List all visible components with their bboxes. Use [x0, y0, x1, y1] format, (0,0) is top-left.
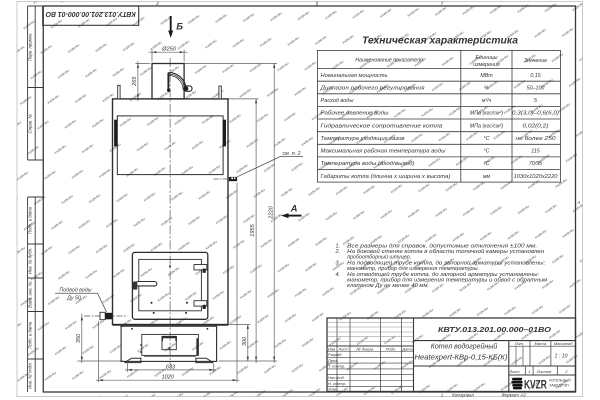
svg-text:Н. контр.: Н. контр. [328, 381, 346, 386]
svg-text:Ø250: Ø250 [161, 46, 177, 52]
svg-text:Масса: Масса [534, 341, 547, 346]
svg-text:KVZR: KVZR [524, 377, 547, 391]
svg-text:КОТЕЛЬНЫЙ: КОТЕЛЬНЫЙ [549, 379, 571, 383]
svg-text:Расход воды: Расход воды [321, 98, 354, 104]
svg-text:2.: 2. [335, 249, 341, 255]
svg-text:Утв.: Утв. [328, 386, 337, 391]
svg-text:Рабочее давление воды: Рабочее давление воды [321, 111, 389, 117]
svg-text:Подп. и дата: Подп. и дата [27, 321, 32, 349]
svg-text:Котел водогрейный: Котел водогрейный [431, 342, 498, 350]
svg-text:Лист: Лист [508, 369, 520, 374]
svg-text:измерения: измерения [473, 62, 500, 68]
svg-text:4.: 4. [336, 272, 341, 278]
svg-text:300: 300 [242, 336, 248, 346]
svg-text:А: А [290, 204, 298, 215]
svg-text:Heatexpert-КВр-0,15-КБ(К): Heatexpert-КВр-0,15-КБ(К) [415, 355, 508, 362]
svg-text:не более 250: не более 250 [516, 136, 556, 142]
svg-text:Нач.отд.: Нач.отд. [328, 375, 345, 380]
svg-text:Подп. и дата: Подп. и дата [27, 206, 32, 234]
svg-text:Листов: Листов [536, 369, 552, 374]
svg-text:Температура воды (вход/выход): Температура воды (вход/выход) [321, 161, 415, 167]
svg-text:Справ. №: Справ. № [27, 114, 32, 134]
svg-text:1 : 10: 1 : 10 [555, 354, 568, 360]
svg-text:Пров.: Пров. [328, 358, 339, 363]
svg-text:0,02(0,2): 0,02(0,2) [523, 123, 549, 129]
svg-text:Инв. № подл.: Инв. № подл. [27, 362, 32, 389]
svg-text:Диапазон рабочего регулировани: Диапазон рабочего регулирования [319, 86, 424, 92]
svg-text:Разраб.: Разраб. [328, 352, 342, 357]
svg-text:Значение: Значение [524, 58, 547, 64]
svg-text:Перв. примен.: Перв. примен. [27, 32, 32, 61]
svg-text:Дата: Дата [401, 346, 413, 351]
svg-text:Т. контр.: Т. контр. [328, 364, 345, 369]
svg-text:Максимальная рабочая температу: Максимальная рабочая температура воды [321, 149, 446, 155]
svg-text:Габариты котла (длинна х ширин: Габариты котла (длинна х ширина х высота… [321, 174, 451, 180]
svg-text:50–100: 50–100 [527, 86, 545, 92]
svg-text:м³/ч: м³/ч [482, 98, 492, 104]
svg-text:МПа (кгс/см²): МПа (кгс/см²) [470, 123, 504, 129]
svg-text:Инв. № дубл.: Инв. № дубл. [27, 248, 32, 274]
svg-text:Наименование показателя: Наименование показателя [355, 58, 423, 64]
svg-text:№ докум.: № докум. [356, 346, 374, 351]
svg-text:633: 633 [166, 364, 176, 370]
svg-text:70/95: 70/95 [529, 161, 542, 167]
svg-text:1030х1020х2220: 1030х1020х2220 [514, 174, 558, 180]
svg-text:1955: 1955 [250, 223, 256, 236]
svg-text:115: 115 [531, 149, 539, 155]
svg-text:Формат А3: Формат А3 [501, 392, 526, 397]
svg-text:А: А [576, 200, 580, 205]
svg-text:см. п. 2: см. п. 2 [283, 151, 301, 157]
svg-text:Единицы: Единицы [475, 55, 497, 61]
svg-text:°С: °С [484, 136, 490, 142]
svg-text:Номинальная мощность: Номинальная мощность [321, 73, 388, 79]
svg-text:МПа (кгс/см²): МПа (кгс/см²) [470, 111, 504, 117]
svg-text:Копировал: Копировал [452, 392, 474, 397]
svg-text:Изм.: Изм. [328, 346, 337, 351]
svg-text:Лист: Лист [337, 346, 349, 351]
svg-text:%: % [484, 86, 489, 92]
svg-text:Температура уходящих газов: Температура уходящих газов [321, 136, 405, 142]
svg-text:КВТУ.013.201.00.000-01 ВО: КВТУ.013.201.00.000-01 ВО [45, 10, 135, 19]
svg-text:Ду 50: Ду 50 [66, 296, 81, 302]
svg-text:Взам. инв. №: Взам. инв. № [27, 281, 32, 308]
svg-text:5: 5 [534, 98, 537, 104]
svg-text:Техническая характеристика: Техническая характеристика [362, 36, 519, 47]
svg-text:265: 265 [132, 76, 138, 87]
svg-text:Гидравлическое сопротивление к: Гидравлическое сопротивление котла [321, 123, 443, 129]
svg-text:0,15: 0,15 [530, 73, 540, 79]
svg-text:клапаном Ду не менее 40 мм.: клапаном Ду не менее 40 мм. [347, 283, 429, 289]
svg-text:мм: мм [483, 174, 491, 180]
svg-text:°С: °С [484, 161, 490, 167]
svg-text:Б: Б [176, 22, 183, 33]
svg-text:°С: °С [484, 149, 490, 155]
svg-text:Лит.: Лит. [514, 341, 524, 346]
svg-text:3.: 3. [336, 261, 341, 267]
svg-text:КВТУ.013.201.00.000–01ВО: КВТУ.013.201.00.000–01ВО [438, 325, 551, 334]
svg-text:ЗАВОД РЭП: ЗАВОД РЭП [549, 383, 569, 387]
svg-text:2220: 2220 [268, 205, 274, 219]
svg-text:350: 350 [76, 333, 82, 343]
svg-text:1020: 1020 [162, 375, 175, 381]
svg-text:2: 2 [155, 1, 159, 6]
svg-text:МВт: МВт [480, 73, 493, 79]
svg-text:1: 1 [528, 369, 530, 374]
svg-text:Масштаб: Масштаб [554, 341, 573, 346]
svg-text:0,3(3,0)–0,6(6,0): 0,3(3,0)–0,6(6,0) [512, 111, 559, 117]
svg-text:Подп.: Подп. [386, 346, 397, 351]
svg-text:Подвод воды: Подвод воды [59, 287, 91, 293]
